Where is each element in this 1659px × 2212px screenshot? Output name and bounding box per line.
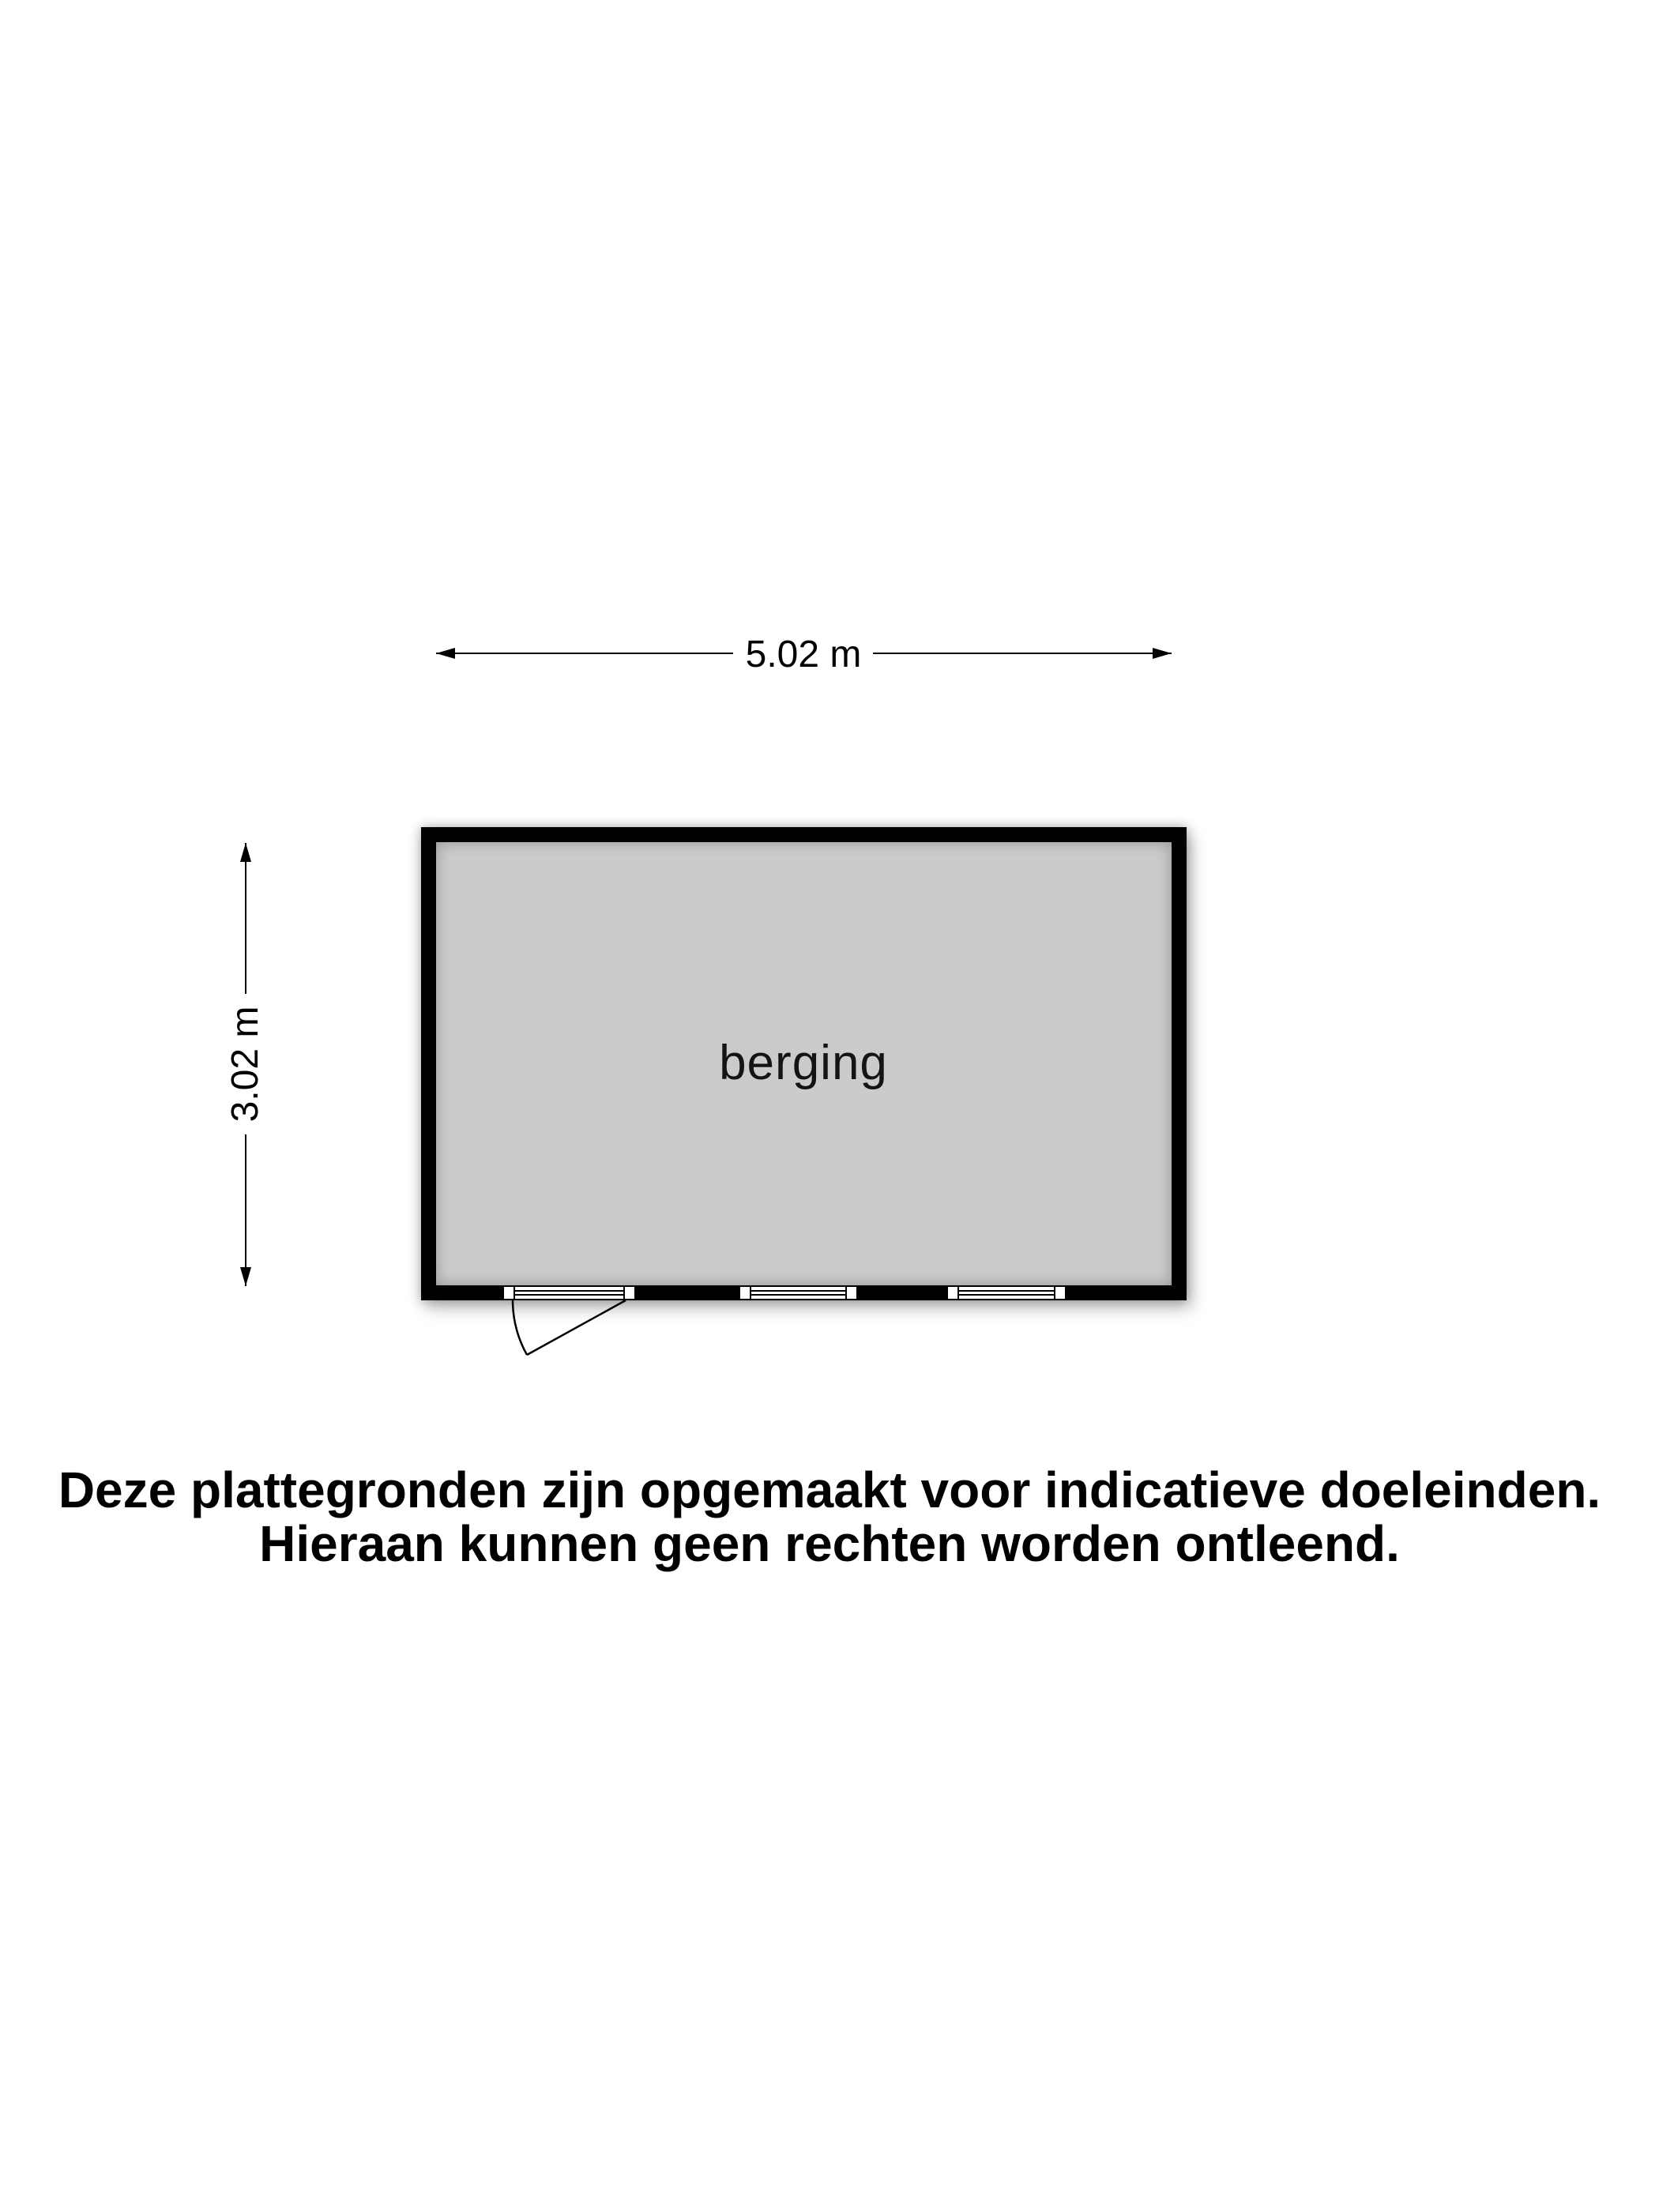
window-jamb-left [740,1287,751,1299]
window-glazing [751,1287,845,1299]
door-opening [502,1285,636,1300]
window [739,1285,858,1300]
width-dimension-line [873,653,1172,654]
disclaimer-line-1: Deze plattegronden zijn opgemaakt voor i… [0,1463,1659,1517]
window-jamb-right [1054,1287,1065,1299]
height-dimension-line [245,1134,246,1286]
disclaimer-line-2: Hieraan kunnen geen rechten worden ontle… [0,1517,1659,1571]
window-jamb-right [845,1287,856,1299]
arrow-left-icon [436,648,455,659]
height-dimension-label: 3.02 m [227,985,265,1143]
width-dimension-label: 5.02 m [724,636,882,674]
floor-plan-page: berging 5.02 m 3.02 m Deze platteg [0,0,1659,2212]
window-jamb-left [948,1287,959,1299]
window-glazing [959,1287,1054,1299]
arrow-down-icon [240,1267,251,1286]
window [946,1285,1066,1300]
arrow-up-icon [240,843,251,862]
disclaimer: Deze plattegronden zijn opgemaakt voor i… [0,1463,1659,1571]
door-jamb-right [623,1287,634,1299]
height-dimension-line [245,843,246,994]
width-dimension-line [436,653,733,654]
door-jamb-left [504,1287,515,1299]
door-panel [515,1287,623,1299]
arrow-right-icon [1153,648,1172,659]
room-label: berging [606,1039,1001,1088]
